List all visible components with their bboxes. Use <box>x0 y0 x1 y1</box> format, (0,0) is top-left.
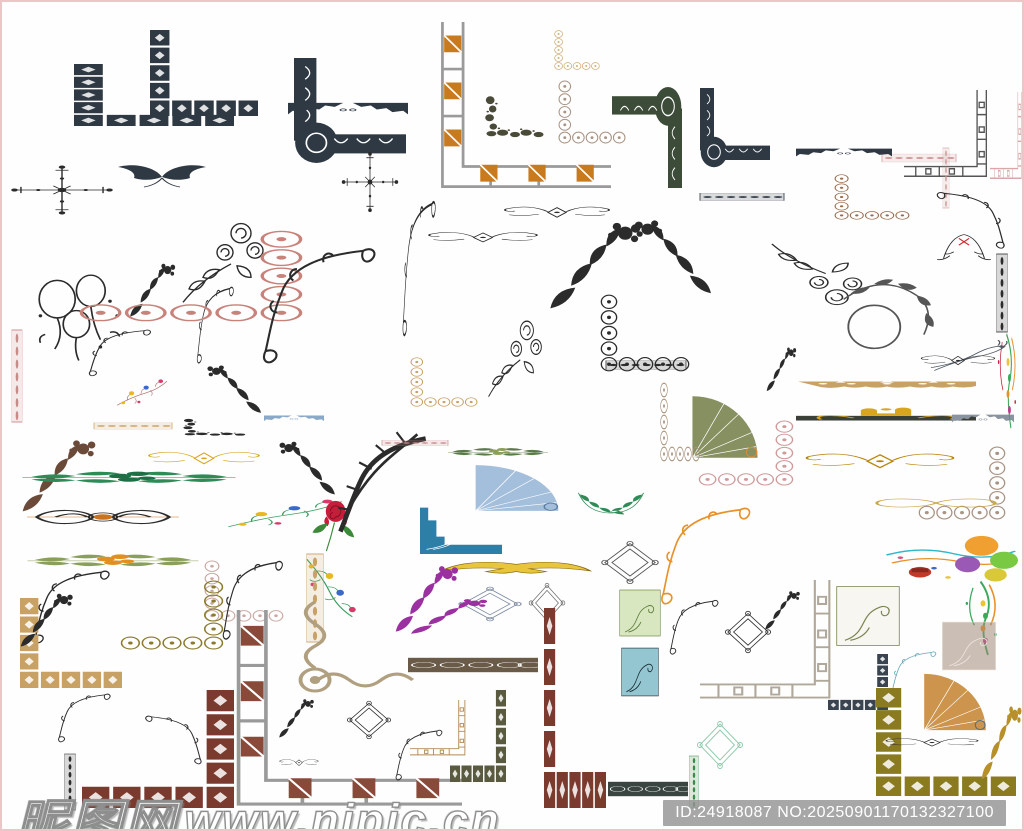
ornament-olive-scroll-corner <box>450 690 506 782</box>
ornament-greek-strip-squares <box>408 650 538 680</box>
ornament-teal-swirl-sprig <box>888 650 934 692</box>
ornament-leaf-garland-corner <box>478 312 544 404</box>
ornament-rope-corner <box>286 600 418 700</box>
ornament-flower-outline-cluster <box>754 238 866 312</box>
ornament-acanthus-divider-green <box>446 436 550 466</box>
ornament-calligraphy-swirl <box>666 598 716 652</box>
ornament-gold-flourish-pair <box>144 442 264 476</box>
ornament-black-peony-corner <box>276 440 340 498</box>
ornament-rose-outline-corner <box>167 214 267 310</box>
ornament-wreath-ring <box>820 270 938 368</box>
ornament-curl-column <box>392 728 440 778</box>
ornament-blue-fan-shell <box>470 462 564 514</box>
ornament-gold-scroll-divider <box>432 550 600 586</box>
ornament-snowflake-cross-small <box>340 150 400 214</box>
ornament-speckle-strip-rose <box>382 436 448 450</box>
ornament-speckle-bar-pink-vertical <box>938 148 954 208</box>
ornament-shell-fan-corner <box>20 598 122 688</box>
ornament-thorn-corner <box>330 430 434 538</box>
ornament-leaf-sprig-small <box>276 698 316 740</box>
ornament-vine-corner-tall <box>400 196 434 330</box>
ornament-greek-tile-corner-large <box>439 22 611 190</box>
ornament-big-greek-tile-corner <box>234 610 462 808</box>
ornament-grunge-strip <box>182 418 248 436</box>
ornament-flourish-small <box>278 754 320 772</box>
ornament-floral-solid-corner-right <box>630 218 718 298</box>
ornament-leaf-branch-vertical <box>764 346 798 394</box>
ornament-lace-strip-navy <box>700 188 784 206</box>
ornament-scroll-medallion-corner <box>294 58 406 164</box>
ornament-purple-floral-corner <box>390 564 462 636</box>
ornament-art-deco-corner-teal <box>420 496 502 554</box>
ornament-beige-greek-corner <box>700 580 832 700</box>
ornament-fern-mandala-corner <box>688 392 762 462</box>
ornament-wings-nouveau <box>112 160 212 210</box>
ornament-shield-motif <box>457 586 523 622</box>
ornament-bracket-corner <box>410 700 466 756</box>
ornament-coin-medallion-corner <box>120 580 224 650</box>
ornament-layer <box>2 2 1022 829</box>
ornament-red-rose <box>302 494 360 556</box>
ornament-valance-pair <box>288 102 408 146</box>
ornament-thin-motif-corner <box>194 284 232 360</box>
ornament-ribbon-swirl-corner-orange <box>654 504 746 600</box>
ornament-leaf-flourish-ink <box>204 364 266 416</box>
ornament-tile-corner-top-left <box>74 64 234 126</box>
ornament-tile-corner-2 <box>150 30 258 116</box>
ornament-balloons-outline <box>26 270 146 374</box>
ornament-greek-square-motif <box>528 582 566 624</box>
ornament-floral-edge-red <box>990 332 1024 432</box>
ornament-mini-flourish-divider <box>882 732 982 754</box>
ornament-quarter-fan-ornate <box>920 670 990 734</box>
ornament-vine-corner-topright-edge <box>940 190 1010 246</box>
ornament-clover-corner-brown <box>16 438 100 516</box>
ornament-leaf-wave-divider-green <box>18 454 240 498</box>
ornament-bead-corner-tan <box>410 357 478 407</box>
ornament-flower-vine-color <box>226 494 344 536</box>
ornament-pink-lace-corner <box>698 420 794 486</box>
ornament-gold-flourish-divider <box>800 442 960 482</box>
ornament-scroll-figure <box>918 348 998 374</box>
ornament-teal-panel <box>620 646 660 698</box>
ornament-pink-greek-corner-edge <box>990 92 1022 180</box>
ornament-peacock-flourish <box>924 330 1010 376</box>
ornament-scallop-bar-tan <box>798 372 976 400</box>
ornament-scroll-pair <box>796 148 892 178</box>
ornament-tile-circles-column <box>660 382 700 462</box>
ornament-chain-circle-corner <box>918 446 1006 520</box>
ornament-swirl-ink-corner <box>28 568 106 640</box>
ornament-rose-solid-corner <box>542 220 646 314</box>
ornament-maroon-greek-bar <box>544 608 606 808</box>
ornament-chain-small-top <box>554 30 600 70</box>
ornament-x-chain-corner <box>600 294 690 372</box>
ornament-mint-knot <box>696 720 744 770</box>
ornament-arrow-swirl <box>148 714 206 762</box>
ornament-fleur-panel <box>834 584 902 648</box>
ornament-pink-cross-bar-vertical <box>4 330 30 422</box>
ornament-knot-cluster <box>724 610 772 654</box>
image-id-bar: ID:24918087 NO:20250901170132327100 <box>663 800 1006 826</box>
ornament-grunge-corner-small <box>484 94 546 138</box>
ornament-laurel-wreath-arc <box>574 484 648 528</box>
ornament-infinity-swirl-gold <box>862 488 1010 518</box>
ornament-floral-sprig-pink <box>116 374 168 414</box>
ornament-floral-bar-vertical <box>988 254 1016 332</box>
ornament-ink-floral-corner <box>16 592 76 650</box>
stock-image-preview: 昵图网 www.nipic.cn ID:24918087 NO:20250901… <box>0 0 1024 831</box>
ornament-green-bar-circle-corner <box>612 86 682 188</box>
ornament-speckle-bar-pink <box>882 148 956 168</box>
ornament-lace-strip-tan <box>94 418 172 434</box>
ornament-confetti-floral-corner <box>762 590 802 632</box>
ornament-swirl-small <box>54 692 108 740</box>
ornament-swirl-palm <box>84 328 148 374</box>
watermark-site-name: 昵图网 <box>16 796 178 831</box>
ornament-knot-motif-gray <box>600 540 660 585</box>
ornament-purple-floral-swag <box>404 598 492 636</box>
ornament-lace-corner-brown <box>834 174 910 220</box>
ornament-crest-gray <box>952 414 1014 444</box>
ornament-gold-tile-greek-corner <box>876 688 1016 796</box>
site-watermark: 昵图网 www.nipic.cn <box>16 782 501 831</box>
ornament-flower-chain-vertical <box>290 558 366 618</box>
watermark-site-url: www.nipic.cn <box>184 794 500 831</box>
ornament-lace-corner-rose <box>204 560 284 622</box>
ornament-gold-floral-corner-edge <box>978 704 1024 784</box>
ornament-lace-chain-corner <box>558 80 626 144</box>
ornament-ornate-knot-small <box>346 700 392 740</box>
ornament-lace-crest-blue <box>264 415 324 437</box>
ornament-ribbon-streamers <box>952 580 1014 658</box>
ornament-navy-bar-corner <box>828 654 888 710</box>
ornament-flourish-divider-ink <box>500 198 614 228</box>
ornament-snowflake-cross <box>8 164 116 216</box>
ornament-crown-bar-gold <box>796 400 976 436</box>
ornament-leaf-silhouette-corner <box>126 262 178 320</box>
ornament-balloons-color <box>878 526 1018 592</box>
ornament-pink-circle-chain-corner <box>78 230 304 322</box>
ornament-snail-swirl-corner <box>218 558 280 636</box>
ornament-loop-divider <box>24 494 182 540</box>
ornament-greek-line-corner-topright <box>904 90 988 178</box>
ornament-green-panel <box>618 588 662 638</box>
ornament-braid-strip <box>606 354 686 376</box>
ornament-wave-divider-ink <box>424 224 542 252</box>
ornament-lace-panel-vertical <box>294 554 336 642</box>
ornament-medallion-corner-navy <box>700 88 770 168</box>
ornament-lace-square-taupe <box>940 620 998 672</box>
ornament-laurel-berry-divider <box>24 536 202 582</box>
ornament-whisker-red-x <box>932 224 996 272</box>
ornament-swirl-corner-large <box>254 244 370 358</box>
